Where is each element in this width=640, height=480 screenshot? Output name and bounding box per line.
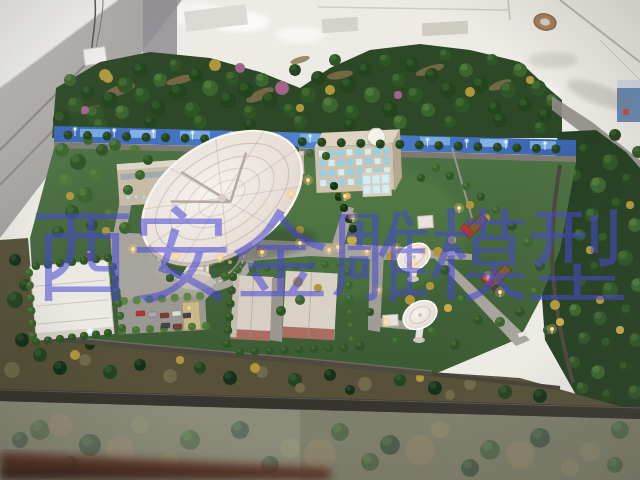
main-observatory-building [314,127,403,199]
window-frame-reflection [143,0,177,57]
photo-architectural-model: 西安金雕模型 [0,0,640,480]
white-warehouse [30,260,114,341]
forest-hillside [52,44,562,138]
equipment-box [418,216,434,229]
warehouse-door-light [87,328,93,334]
person-figure [88,251,91,260]
model-scene [0,0,640,480]
